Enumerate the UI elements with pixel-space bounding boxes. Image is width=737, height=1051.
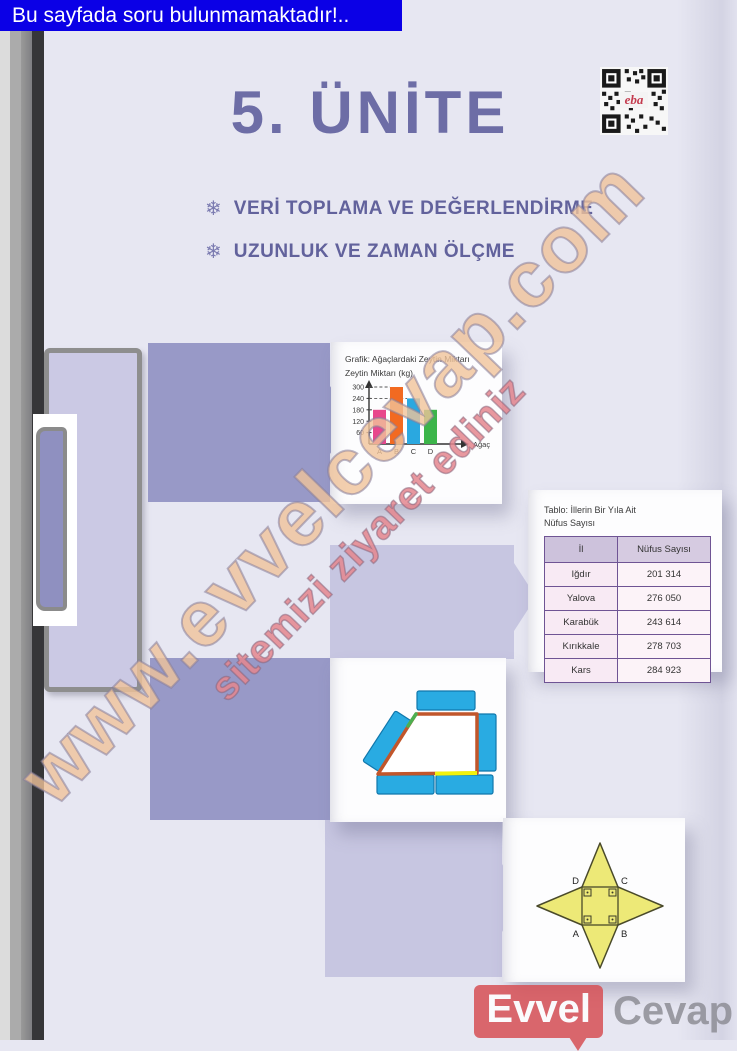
table-row: Iğdır201 314: [545, 563, 711, 587]
province-cell: Iğdır: [545, 563, 618, 587]
svg-text:300: 300: [352, 385, 364, 392]
population-cell: 278 703: [618, 635, 711, 659]
svg-text:180: 180: [352, 407, 364, 414]
callout-block-1: [148, 343, 330, 502]
table-title-line1: Tablo: İllerin Bir Yıla Ait: [544, 504, 722, 517]
province-cell: Karabük: [545, 611, 618, 635]
star-square-panel: D C A B: [503, 818, 685, 982]
table-header-row: İl Nüfus Sayısı: [545, 537, 711, 563]
svg-text:120: 120: [352, 419, 364, 426]
page-edge-strip: [0, 0, 10, 1040]
unit-topics: ❄ VERİ TOPLAMA VE DEĞERLENDİRME ❄ UZUNLU…: [205, 196, 593, 282]
table-row: Kırıkkale278 703: [545, 635, 711, 659]
col-header-province: İl: [545, 537, 618, 563]
svg-text:Ağaç: Ağaç: [473, 440, 490, 449]
svg-text:D: D: [428, 447, 434, 456]
page-edge-strip: [21, 0, 32, 1040]
no-question-notice: Bu sayfada soru bulunmamaktadır!..: [0, 0, 402, 31]
corner-label-D: D: [572, 876, 579, 887]
callout-block-2: [330, 545, 514, 659]
svg-text:60: 60: [356, 430, 364, 437]
population-cell: 243 614: [618, 611, 711, 635]
blue-block: [436, 775, 493, 794]
svg-text:A: A: [377, 447, 382, 456]
chart-title: Grafik: Ağaçlardaki Zeytin Miktarı: [345, 354, 502, 364]
callout-block-3: [150, 658, 330, 820]
table-row: Karabük243 614: [545, 611, 711, 635]
topic-label: VERİ TOPLAMA VE DEĞERLENDİRME: [234, 198, 594, 220]
table-row: Yalova276 050: [545, 587, 711, 611]
topic-item: ❄ VERİ TOPLAMA VE DEĞERLENDİRME: [205, 196, 593, 221]
province-cell: Yalova: [545, 587, 618, 611]
population-cell: 276 050: [618, 587, 711, 611]
svg-text:C: C: [411, 447, 417, 456]
eba-logo: eba: [620, 92, 648, 108]
province-cell: Kars: [545, 659, 618, 683]
province-cell: Kırıkkale: [545, 635, 618, 659]
bar-chart-plot: 60120180240300ABCDAğaç: [337, 380, 500, 458]
snowflake-icon: ❄: [205, 196, 222, 221]
corner-label-A: A: [573, 929, 580, 940]
callout-block-4: [325, 820, 502, 977]
logo-speech-bubble: Evvel: [474, 985, 603, 1038]
blue-block: [377, 775, 434, 794]
yellow-edge-segment: [435, 773, 477, 774]
unit-title: 5. ÜNİTE: [170, 78, 570, 147]
trapezoid-blocks-figure: [330, 658, 506, 822]
svg-text:240: 240: [352, 396, 364, 403]
topic-label: UZUNLUK VE ZAMAN ÖLÇME: [234, 241, 515, 263]
population-cell: 201 314: [618, 563, 711, 587]
star-square-figure: D C A B: [503, 818, 685, 982]
population-table-panel: Tablo: İllerin Bir Yıla Ait Nüfus Sayısı…: [528, 490, 722, 672]
snowflake-icon: ❄: [205, 239, 222, 264]
table-row: Kars284 923: [545, 659, 711, 683]
four-point-star: [537, 843, 663, 968]
blue-block: [417, 691, 475, 710]
corner-label-B: B: [621, 929, 627, 940]
col-header-population: Nüfus Sayısı: [618, 537, 711, 563]
table-title: Tablo: İllerin Bir Yıla Ait Nüfus Sayısı: [544, 504, 722, 530]
corner-label-C: C: [621, 876, 628, 887]
logo-secondary-text: Cevap: [613, 989, 733, 1034]
population-cell: 284 923: [618, 659, 711, 683]
qr-code: eba: [600, 67, 668, 135]
chart-y-axis-label: Zeytin Miktarı (kg): [345, 368, 502, 378]
site-logo: Evvel Cevap: [474, 985, 733, 1038]
population-table: İl Nüfus Sayısı Iğdır201 314Yalova276 05…: [544, 536, 711, 683]
svg-text:B: B: [394, 447, 399, 456]
olive-bar-chart-panel: Grafik: Ağaçlardaki Zeytin Miktarı Zeyti…: [331, 342, 502, 504]
topic-item: ❄ UZUNLUK VE ZAMAN ÖLÇME: [205, 239, 593, 264]
table-title-line2: Nüfus Sayısı: [544, 517, 722, 530]
bookmark-inner-tab: [36, 427, 67, 611]
page-edge-strip: [10, 0, 21, 1040]
blue-block: [477, 714, 496, 771]
trapezoid-blocks-panel: [330, 658, 506, 822]
